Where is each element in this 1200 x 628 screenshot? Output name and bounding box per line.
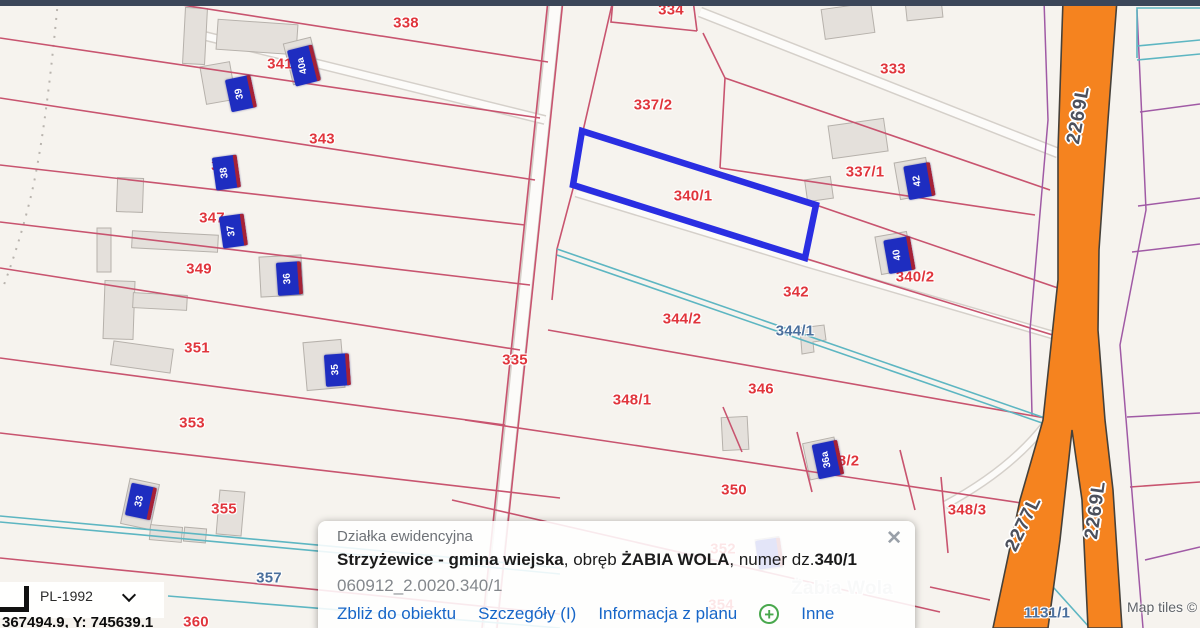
top-bar <box>0 0 1200 6</box>
popup-links-row: Zbliż do obiektu Szczegóły (I) Informacj… <box>337 604 834 624</box>
parcel-label-360: 360 <box>183 614 209 628</box>
crs-selector[interactable]: PL-1992 <box>40 588 93 604</box>
parcel-label-353: 353 <box>179 415 205 432</box>
parcel-label-350: 350 <box>721 482 747 499</box>
map-tiles-credit: Map tiles © <box>1127 599 1197 615</box>
parcel-label-1131-1: 1131/1 <box>1024 605 1070 622</box>
building-marker-36[interactable]: 36 <box>276 261 303 296</box>
cursor-coordinates: 367494.9, Y: 745639.1 <box>2 614 153 628</box>
map-viewer: 338341334333343337/2345347337/1340/13493… <box>0 0 1200 628</box>
municipality-name: Strzyżewice - gmina wiejska <box>337 550 564 569</box>
details-link[interactable]: Szczegóły (I) <box>478 604 576 624</box>
parcel-label-335: 335 <box>502 352 528 369</box>
extent-corner-icon[interactable] <box>0 582 32 618</box>
other-link[interactable]: Inne <box>801 604 834 624</box>
description-sep1: , obręb <box>564 550 622 569</box>
parcel-label-349: 349 <box>186 261 212 278</box>
parcel-label-355: 355 <box>211 501 237 518</box>
chevron-down-icon[interactable] <box>124 590 135 601</box>
plan-information-link[interactable]: Informacja z planu <box>598 604 737 624</box>
parcel-number: 340/1 <box>814 550 857 569</box>
building-marker-37[interactable]: 37 <box>219 213 248 248</box>
building-marker-35[interactable]: 35 <box>324 353 351 387</box>
parcel-label-348-1: 348/1 <box>613 392 652 409</box>
building-marker-38[interactable]: 38 <box>212 154 241 190</box>
zoom-to-object-link[interactable]: Zbliż do obiektu <box>337 604 456 624</box>
building-marker-40[interactable]: 40 <box>883 236 915 274</box>
building-number: 36 <box>282 273 294 285</box>
parcel-label-343: 343 <box>309 131 335 148</box>
district-name: ŻABIA WOLA <box>621 550 729 569</box>
parcel-label-342: 342 <box>783 284 809 301</box>
popup-title: Działka ewidencyjna <box>337 528 473 545</box>
building-number: 37 <box>225 225 237 238</box>
description-sep2: , numer dz. <box>729 550 814 569</box>
parcel-label-337-2: 337/2 <box>634 97 673 114</box>
building-number: 36a <box>819 451 833 470</box>
parcel-label-344-1: 344/1 <box>776 323 815 340</box>
building-number: 38 <box>218 167 230 180</box>
parcel-label-348-3: 348/3 <box>948 502 987 519</box>
parcel-label-337-1: 337/1 <box>846 164 885 181</box>
crs-widget: PL-1992 <box>0 582 164 618</box>
parcel-description: Strzyżewice - gmina wiejska, obręb ŻABIA… <box>337 550 857 570</box>
parcel-info-popup: Działka ewidencyjna Strzyżewice - gmina … <box>318 521 915 628</box>
building-number: 39 <box>233 87 246 100</box>
parcel-label-351: 351 <box>184 340 210 357</box>
building-number: 33 <box>133 494 146 507</box>
building-number: 40 <box>891 249 904 262</box>
parcel-label-333: 333 <box>880 61 906 78</box>
parcel-label-346: 346 <box>748 381 774 398</box>
parcel-label-344-2: 344/2 <box>663 311 702 328</box>
building-marker-42[interactable]: 42 <box>903 162 935 200</box>
building-number: 35 <box>330 364 342 376</box>
dashed-boundary-line <box>2 0 58 290</box>
close-icon[interactable]: ✕ <box>886 527 902 550</box>
parcel-label-340-1: 340/1 <box>674 188 713 205</box>
building-number: 42 <box>911 175 924 188</box>
parcel-label-338: 338 <box>393 15 419 32</box>
building-number: 40a <box>295 57 310 76</box>
plus-circle-icon[interactable]: + <box>759 604 779 624</box>
parcel-id: 060912_2.0020.340/1 <box>337 576 502 596</box>
parcel-label-357: 357 <box>256 570 282 587</box>
